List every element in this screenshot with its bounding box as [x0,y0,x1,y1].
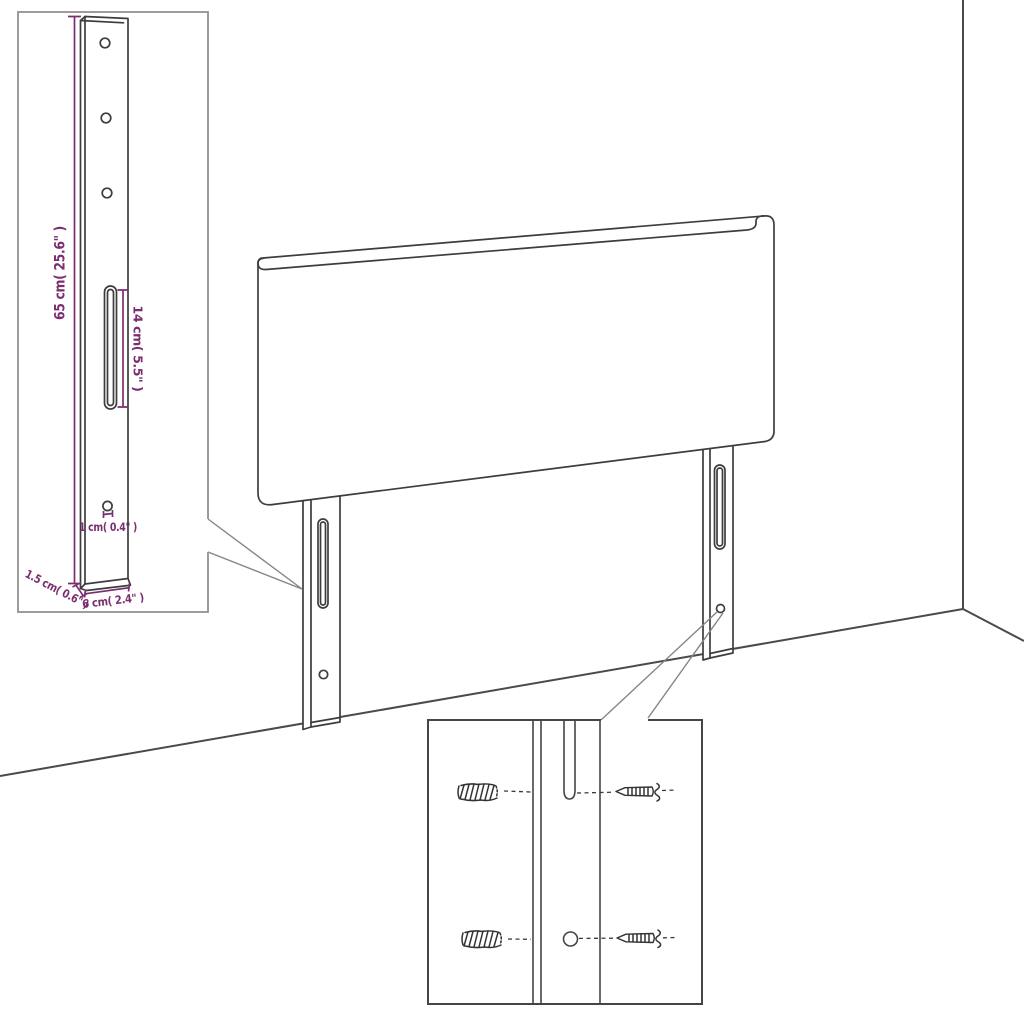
floor-line-right [963,609,1024,641]
bracket-small-hole [103,501,112,510]
left-leg-slot [318,519,328,608]
diagram-page: 65 cm( 25.6" ) 14 cm( 5.5" ) 1 cm( 0.4" … [0,0,1024,1024]
right-leg-hole [717,605,725,613]
bracket-slot [105,286,117,409]
panel-outline [258,216,774,505]
left-leg-hole [319,670,327,678]
hole-dimension-label: 1 cm( 0.4" ) [79,520,137,534]
bracket-hole-lower [102,188,112,198]
leg-detail-inset: 65 cm( 25.6" ) 14 cm( 5.5" ) 1 cm( 0.4" … [18,12,208,612]
headboard-right-leg [703,420,733,660]
mounting-detail-inset [428,720,702,1004]
headboard-panel [258,216,774,505]
slot-dimension-label: 14 cm( 5.5" ) [131,306,146,392]
mounting-inset-background [428,720,702,1004]
diagram-canvas: 65 cm( 25.6" ) 14 cm( 5.5" ) 1 cm( 0.4" … [0,0,1024,1024]
leg-inset-callout-lines [208,519,302,589]
height-dimension-label: 65 cm( 25.6" ) [53,226,69,320]
bracket-hole-middle [101,113,111,123]
right-leg-slot [715,465,726,549]
bracket-hole-top [100,38,110,48]
